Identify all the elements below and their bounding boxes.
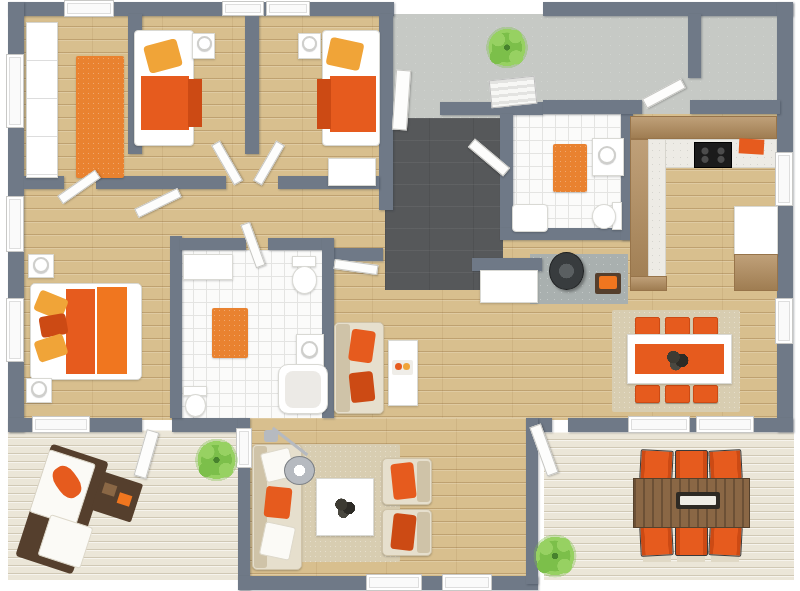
porch-plant — [485, 24, 529, 71]
deck-chair-1 — [639, 449, 674, 481]
bay-armchair-2-pillow — [390, 513, 417, 551]
bay-sofa-pillow-orange — [263, 486, 292, 520]
bed3-dresser — [328, 158, 376, 186]
bed3-duvet-side — [317, 79, 331, 129]
kitchen-counter-west — [648, 139, 666, 279]
deck-chair-4 — [639, 525, 674, 557]
window-right-kitchen — [775, 152, 793, 206]
deck-chair-2 — [675, 450, 708, 480]
deck-chair-3 — [708, 449, 743, 481]
bed3-duvet — [330, 76, 376, 132]
dining-chair-6 — [693, 385, 718, 403]
window-left-3 — [6, 298, 24, 362]
dining-chair-1 — [635, 317, 660, 335]
bath1-toilet-bowl — [292, 266, 317, 294]
dining-chair-3 — [693, 317, 718, 335]
entry-cabinet — [480, 270, 538, 303]
cooktop — [694, 142, 732, 168]
kitchen-island-base — [734, 254, 778, 291]
wood-stove — [549, 252, 584, 290]
window-left-1 — [6, 54, 24, 128]
floorplan — [0, 0, 800, 591]
window-dining-south-2 — [696, 416, 754, 433]
window-bay-south-2 — [442, 574, 492, 591]
window-top-1 — [64, 0, 114, 17]
bay-centerpiece — [331, 495, 358, 520]
sofa-main-pillow-2 — [348, 371, 375, 403]
wall-master-east — [170, 236, 182, 418]
bay-armchair-2-back — [417, 512, 430, 553]
kitchen-cabinet-west — [630, 139, 649, 291]
bath1-toilet2-bowl — [185, 394, 206, 417]
bay-armchair-1-pillow — [390, 462, 417, 500]
kitchen-appliance — [739, 138, 765, 154]
window-master-south — [32, 416, 90, 433]
master-duvet-right — [97, 287, 127, 374]
wall-bed3-entry — [379, 14, 393, 210]
kitchen-island-top — [734, 206, 778, 256]
window-dining-south-1 — [628, 416, 690, 433]
coffee-table-fruit-1 — [395, 363, 402, 370]
bedroom1-rug — [76, 56, 124, 178]
master-lamp-north — [33, 257, 49, 273]
dining-centerpiece — [662, 348, 692, 372]
bed3-lamp — [302, 36, 317, 51]
dining-chair-4 — [635, 385, 660, 403]
wall-top-right — [543, 2, 793, 16]
kitchen-upper-cabinets — [630, 116, 777, 139]
firewood-logs — [599, 276, 617, 289]
bath1-bathtub-inner — [285, 371, 321, 408]
window-bay-south-1 — [366, 574, 422, 591]
wardrobe — [26, 22, 58, 178]
wall-bottom-left-b — [172, 418, 246, 432]
bath1-rug — [212, 308, 248, 358]
deck-plant — [532, 532, 578, 580]
wall-bath1-north-a — [180, 238, 246, 250]
bath1-sink — [301, 341, 318, 358]
bath2-shower — [512, 204, 548, 232]
wall-bed2-bed3 — [245, 14, 259, 154]
window-left-2 — [6, 196, 24, 252]
dining-chair-2 — [665, 317, 690, 335]
master-lamp-south — [31, 381, 47, 397]
dining-chair-5 — [665, 385, 690, 403]
patio-plant — [194, 436, 239, 484]
bed2-duvet — [141, 76, 189, 130]
kitchen-cabinet-corner — [630, 276, 667, 291]
master-duvet-left — [66, 289, 95, 374]
bay-armchair-1-back — [417, 461, 430, 502]
deck-tray-inner — [680, 496, 716, 505]
window-top-3 — [266, 1, 310, 16]
wall-storage-divider — [688, 14, 701, 78]
bath2-rug — [553, 144, 587, 192]
deck-chair-5 — [675, 526, 708, 556]
window-top-2 — [222, 1, 264, 16]
sofa-main-back — [336, 324, 350, 412]
floor-lamp-shade — [284, 456, 315, 485]
window-right-dining — [775, 298, 793, 344]
wall-right — [777, 2, 793, 432]
sofa-main-pillow-1 — [348, 328, 376, 363]
coffee-table-fruit-2 — [403, 363, 410, 370]
wall-storage-south-a — [543, 100, 642, 114]
bath2-toilet-bowl — [592, 204, 616, 229]
bed2-lamp — [197, 36, 212, 51]
bed2-duvet-side — [188, 79, 202, 127]
bath2-mirror — [598, 146, 616, 164]
porch-gate — [489, 76, 538, 109]
bath1-cabinet — [183, 254, 233, 280]
deck-chair-6 — [708, 525, 743, 557]
wall-storage-south-b — [690, 100, 780, 114]
